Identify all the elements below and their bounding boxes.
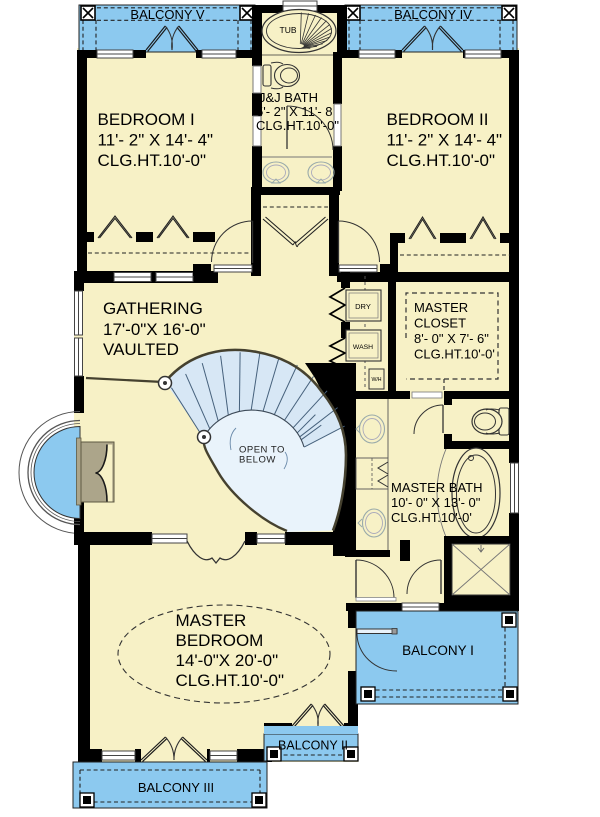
svg-text:MASTER BATH: MASTER BATH bbox=[391, 480, 483, 495]
svg-text:5'- 2" X 11'- 8: 5'- 2" X 11'- 8 bbox=[256, 104, 333, 119]
svg-text:CLG.HT.10'-0": CLG.HT.10'-0" bbox=[176, 671, 284, 690]
svg-text:WASH: WASH bbox=[353, 344, 373, 351]
svg-text:J&J BATH: J&J BATH bbox=[259, 90, 318, 105]
svg-text:BALCONY II: BALCONY II bbox=[278, 739, 348, 753]
svg-text:11'- 2" X 14'- 4": 11'- 2" X 14'- 4" bbox=[98, 131, 214, 150]
svg-text:MASTER: MASTER bbox=[414, 300, 468, 315]
svg-text:BEDROOM: BEDROOM bbox=[176, 631, 264, 650]
svg-text:VAULTED: VAULTED bbox=[103, 340, 179, 359]
svg-text:BALCONY III: BALCONY III bbox=[138, 780, 214, 795]
svg-text:11'- 2" X 14'- 4": 11'- 2" X 14'- 4" bbox=[387, 131, 503, 150]
svg-text:CLG.HT.10'-0': CLG.HT.10'-0' bbox=[391, 510, 472, 525]
svg-text:CLG.HT.10'-0": CLG.HT.10'-0" bbox=[387, 151, 495, 170]
svg-text:14'-0"X 20'-0": 14'-0"X 20'-0" bbox=[176, 651, 279, 670]
svg-text:GATHERING: GATHERING bbox=[103, 299, 203, 318]
svg-text:W/H: W/H bbox=[371, 377, 381, 383]
svg-text:MASTER: MASTER bbox=[176, 611, 247, 630]
svg-text:CLOSET: CLOSET bbox=[414, 316, 466, 331]
svg-text:BEDROOM II: BEDROOM II bbox=[387, 110, 489, 129]
svg-text:BALCONY IV: BALCONY IV bbox=[394, 7, 472, 22]
svg-text:BEDROOM I: BEDROOM I bbox=[98, 110, 195, 129]
svg-text:DRY: DRY bbox=[355, 302, 371, 311]
svg-text:BELOW: BELOW bbox=[239, 455, 276, 466]
svg-text:10'- 0" X 13'- 0": 10'- 0" X 13'- 0" bbox=[391, 495, 481, 510]
svg-text:CLG.HT.10'-0': CLG.HT.10'-0' bbox=[414, 347, 495, 362]
svg-text:17'-0"X 16'-0": 17'-0"X 16'-0" bbox=[103, 320, 206, 339]
svg-text:CLG.HT.10'-0": CLG.HT.10'-0" bbox=[98, 151, 206, 170]
svg-text:BALCONY I: BALCONY I bbox=[402, 643, 474, 658]
svg-text:8'- 0" X 7'- 6": 8'- 0" X 7'- 6" bbox=[414, 331, 489, 346]
svg-text:CLG.HT.10'-0": CLG.HT.10'-0" bbox=[256, 118, 339, 133]
svg-text:TUB: TUB bbox=[280, 25, 297, 35]
svg-text:BALCONY V: BALCONY V bbox=[130, 7, 205, 22]
